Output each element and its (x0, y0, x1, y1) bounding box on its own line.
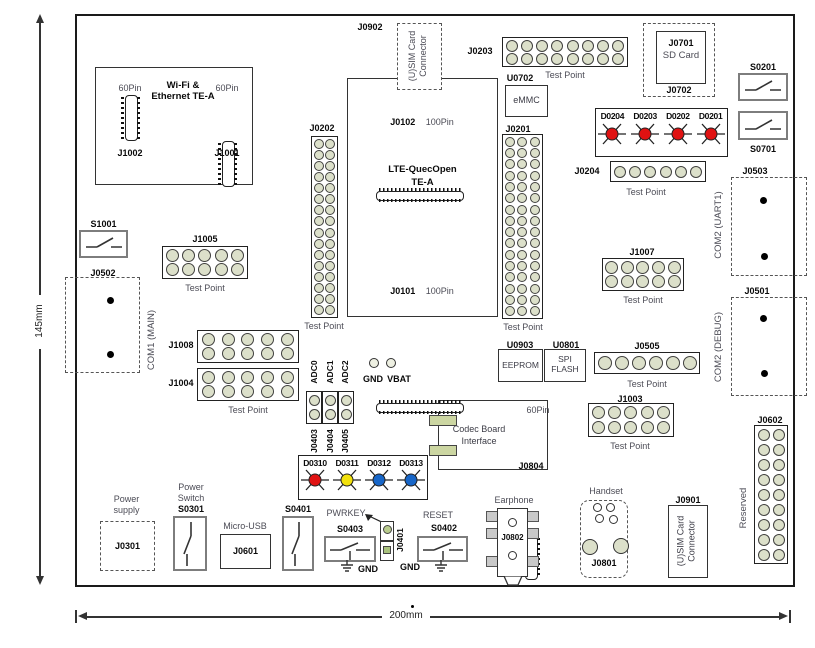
j0102-ref: J0102 (390, 117, 415, 127)
j0505-testpoint-grid (594, 352, 700, 374)
j1004-ref: J1004 (166, 378, 196, 388)
test-pad (530, 284, 540, 294)
test-pad (309, 409, 320, 420)
led-icon (597, 121, 627, 147)
switch-icon (179, 520, 201, 568)
j0101-label-row: J0101 100Pin (374, 281, 470, 299)
test-pad (530, 137, 540, 147)
test-pad (314, 283, 324, 293)
handset-pad (613, 538, 629, 554)
adc0-header-grid (306, 391, 322, 424)
j1005-ref: J1005 (162, 234, 248, 244)
test-pad (325, 272, 335, 282)
j0204-caption: Test Point (606, 187, 686, 197)
test-pad (314, 172, 324, 182)
s0301-switch (173, 516, 207, 571)
j0401-pin-square (383, 546, 391, 554)
gnd-pad (369, 358, 379, 368)
com1-main-area (65, 277, 140, 373)
test-pad (773, 429, 785, 441)
test-pad (530, 159, 540, 169)
pin-dot (760, 197, 767, 204)
test-pad (166, 249, 179, 262)
test-pad (202, 347, 215, 360)
test-pad (652, 261, 665, 274)
test-pad (612, 40, 624, 52)
test-pad (241, 371, 254, 384)
led-label: D0311 (335, 458, 358, 468)
led-bank-top: D0204 D0203 D0202 D0201 (595, 108, 728, 157)
j1002-connector-icon (121, 95, 140, 141)
com2-uart1-area (731, 177, 807, 276)
s0402-ref: S0402 (424, 523, 464, 533)
adc2-label: ADC2 (340, 357, 350, 387)
height-dim-label: 145mm (34, 298, 46, 344)
test-pad (530, 261, 540, 271)
j0202-ref: J0202 (300, 123, 344, 133)
test-pad (505, 205, 515, 215)
test-pad (758, 444, 770, 456)
test-pad (314, 139, 324, 149)
test-pad (517, 295, 527, 305)
handset-label: Handset (584, 486, 628, 496)
width-dim-label: 200mm (382, 610, 430, 621)
switch-icon (328, 538, 372, 560)
test-pad (314, 205, 324, 215)
module-title-line2: TE-A (357, 177, 488, 188)
pwrkey-gnd-label: GND (354, 564, 382, 574)
switch-icon (84, 234, 124, 254)
j0701-ref: J0701 (658, 38, 704, 48)
test-pad (644, 166, 656, 178)
test-pad (325, 139, 335, 149)
power-supply-label-line1: Power (104, 494, 149, 504)
test-pad (505, 272, 515, 282)
led-label: D0202 (666, 111, 690, 121)
j0405-ref: J0405 (340, 424, 350, 458)
led-d0312: D0312 (363, 458, 395, 499)
vbat-label: VBAT (384, 374, 414, 384)
test-pad (517, 137, 527, 147)
j1005-caption: Test Point (165, 283, 245, 293)
adc1-label: ADC1 (325, 357, 335, 387)
jack-tab (527, 528, 539, 539)
j0202-testpoint-grid (311, 136, 338, 318)
j1004-caption: Test Point (208, 405, 288, 415)
test-pad (314, 250, 324, 260)
power-switch-label-line1: Power (168, 482, 214, 492)
test-pad (773, 489, 785, 501)
led-d0203: D0203 (629, 111, 662, 156)
test-pad (636, 261, 649, 274)
j0201-caption: Test Point (491, 322, 555, 332)
led-icon (630, 121, 660, 147)
test-pad (517, 250, 527, 260)
arrow-down-icon (36, 576, 44, 585)
test-pad (517, 238, 527, 248)
sim-top-line1: (U)SIM Card (407, 31, 417, 82)
test-pad (325, 261, 335, 271)
test-pad (605, 261, 618, 274)
s0701-switch (738, 111, 788, 140)
test-pad (314, 272, 324, 282)
codec-tab (429, 445, 457, 456)
test-pad (641, 421, 654, 434)
test-pad (341, 409, 352, 420)
test-pad (567, 53, 579, 65)
width-dim-tick (75, 610, 77, 623)
test-pad (261, 333, 274, 346)
adc0-label: ADC0 (309, 357, 319, 387)
j0404-ref: J0404 (325, 424, 335, 458)
spi-flash-line1: SPI (544, 354, 586, 364)
test-pad (231, 249, 244, 262)
test-pad (758, 474, 770, 486)
j0101-pin-count: 100Pin (426, 286, 454, 296)
led-label: D0204 (601, 111, 625, 121)
test-pad (325, 172, 335, 182)
test-pad (325, 294, 335, 304)
test-pad (636, 275, 649, 288)
test-pad (758, 459, 770, 471)
wifi-title-line2: Ethernet TE-A (151, 91, 214, 102)
test-pad (517, 171, 527, 181)
j1007-testpoint-grid (602, 258, 684, 291)
j1007-caption: Test Point (603, 295, 683, 305)
j0501-ref: J0501 (737, 286, 777, 296)
test-pad (325, 409, 336, 420)
test-pad (341, 395, 352, 406)
test-pad (530, 148, 540, 158)
s0201-switch (738, 73, 788, 101)
test-pad (758, 429, 770, 441)
j0102-pin-count: 100Pin (426, 117, 454, 127)
j1005-testpoint-grid (162, 246, 248, 279)
led-label: D0312 (367, 458, 391, 468)
test-pad (530, 216, 540, 226)
sim-bottom-label: (U)SIM Card Connector (676, 508, 700, 575)
test-pad (530, 272, 540, 282)
test-pad (215, 263, 228, 276)
j0202-caption: Test Point (292, 321, 356, 331)
j0204-ref: J0204 (566, 166, 608, 176)
test-pad (608, 421, 621, 434)
j1008-testpoint-grid (197, 330, 299, 363)
jack-tab (527, 511, 539, 522)
board-diagram: Wi-Fi & Ethernet TE-A 60Pin J1002 60Pin … (0, 0, 815, 648)
j0505-ref: J0505 (627, 341, 667, 351)
test-pad (530, 171, 540, 181)
adc2-header-grid (338, 391, 354, 424)
test-pad (241, 385, 254, 398)
handset-hole (593, 503, 602, 512)
j1003-caption: Test Point (590, 441, 670, 451)
test-pad (215, 249, 228, 262)
reserved-label: Reserved (738, 478, 750, 538)
led-label: D0313 (399, 458, 423, 468)
test-pad (505, 227, 515, 237)
s0401-ref: S0401 (280, 504, 316, 514)
width-dim-line (430, 616, 779, 618)
spi-flash-line2: FLASH (544, 364, 586, 374)
j0503-ref: J0503 (735, 166, 775, 176)
j0204-testpoint-grid (610, 161, 706, 182)
test-pad (505, 148, 515, 158)
test-pad (309, 395, 320, 406)
test-pad (683, 356, 697, 370)
test-pad (325, 239, 335, 249)
pin-dot (107, 297, 114, 304)
test-pad (624, 421, 637, 434)
led-icon (396, 468, 426, 492)
test-pad (517, 205, 527, 215)
sd-card-label: SD Card (656, 50, 706, 61)
s0201-ref: S0201 (738, 62, 788, 72)
test-pad (632, 356, 646, 370)
led-icon (696, 121, 726, 147)
test-pad (222, 347, 235, 360)
s0402-switch (417, 536, 468, 562)
led-d0204: D0204 (596, 111, 629, 156)
test-pad (536, 53, 548, 65)
test-pad (505, 137, 515, 147)
test-pad (314, 150, 324, 160)
test-pad (598, 356, 612, 370)
led-icon (364, 468, 394, 492)
test-pad (551, 53, 563, 65)
test-pad (325, 205, 335, 215)
codec-label-line2: Interface (448, 436, 510, 446)
j0401-pin-round (383, 525, 392, 534)
test-pad (773, 504, 785, 516)
test-pad (517, 159, 527, 169)
sim-bottom-line1: (U)SIM Card (676, 516, 686, 567)
test-pad (773, 549, 785, 561)
test-pad (517, 272, 527, 282)
codec-label-line1: Codec Board (448, 424, 510, 434)
adc1-header-grid (322, 391, 338, 424)
j0101-connector-icon (376, 400, 464, 414)
j0403-ref: J0403 (309, 424, 319, 458)
handset-hole (606, 503, 615, 512)
stray-dot (411, 605, 414, 608)
test-pad (505, 306, 515, 316)
test-pad (325, 150, 335, 160)
jack-hole (508, 518, 517, 527)
earphone-label: Earphone (490, 495, 538, 505)
test-pad (325, 216, 335, 226)
s0301-ref: S0301 (168, 504, 214, 514)
s0403-ref: S0403 (330, 524, 370, 534)
test-pad (281, 333, 294, 346)
led-label: D0310 (303, 458, 327, 468)
sim-top-label: (U)SIM Card Connector (407, 25, 431, 87)
test-pad (517, 193, 527, 203)
j0801-ref: J0801 (589, 558, 619, 568)
test-pad (314, 261, 324, 271)
j0602-reserved-grid (754, 425, 788, 564)
test-pad (314, 194, 324, 204)
test-pad (530, 306, 540, 316)
j1003-testpoint-grid (588, 403, 674, 437)
j0505-caption: Test Point (607, 379, 687, 389)
test-pad (758, 519, 770, 531)
test-pad (281, 371, 294, 384)
power-switch-label-line2: Switch (168, 493, 214, 503)
pin-dot (760, 315, 767, 322)
power-supply-label-line2: supply (104, 505, 149, 515)
j1001-pin-count: 60Pin (207, 83, 247, 93)
led-d0202: D0202 (662, 111, 695, 156)
test-pad (660, 166, 672, 178)
test-pad (666, 356, 680, 370)
test-pad (773, 474, 785, 486)
s1001-switch (79, 230, 128, 258)
test-pad (314, 239, 324, 249)
test-pad (592, 406, 605, 419)
test-pad (530, 295, 540, 305)
test-pad (649, 356, 663, 370)
test-pad (505, 238, 515, 248)
test-pad (530, 182, 540, 192)
test-pad (597, 40, 609, 52)
test-pad (551, 40, 563, 52)
test-pad (222, 371, 235, 384)
j0601-ref: J0601 (220, 546, 271, 556)
j0802-ref: J0802 (498, 533, 527, 542)
switch-icon (287, 520, 309, 568)
led-label: D0201 (699, 111, 723, 121)
test-pad (241, 333, 254, 346)
test-pad (657, 421, 670, 434)
test-pad (592, 421, 605, 434)
test-pad (758, 489, 770, 501)
j1002-pin-count: 60Pin (110, 83, 150, 93)
led-icon (332, 468, 362, 492)
test-pad (530, 205, 540, 215)
test-pad (202, 371, 215, 384)
test-pad (614, 166, 626, 178)
test-pad (325, 250, 335, 260)
com2-uart1-label: COM2 (UART1) (713, 185, 725, 265)
j0301-ref: J0301 (100, 541, 155, 551)
handset-hole (609, 515, 618, 524)
wifi-title-line1: Wi-Fi & (167, 80, 200, 91)
test-pad (222, 333, 235, 346)
led-icon (300, 468, 330, 492)
pin-dot (761, 253, 768, 260)
test-pad (314, 216, 324, 226)
test-pad (281, 347, 294, 360)
handset-hole (595, 514, 604, 523)
led-icon (663, 121, 693, 147)
test-pad (314, 228, 324, 238)
led-d0201: D0201 (694, 111, 727, 156)
test-pad (517, 216, 527, 226)
reset-label: RESET (418, 510, 458, 520)
test-pad (314, 183, 324, 193)
arrow-right-icon (779, 612, 788, 620)
test-pad (325, 283, 335, 293)
j0902-ref: J0902 (350, 22, 390, 32)
com2-debug-label: COM2 (DEBUG) (713, 307, 725, 387)
test-pad (521, 53, 533, 65)
test-pad (517, 261, 527, 271)
test-pad (505, 295, 515, 305)
led-bank-mid: D0310 D0311 D0312 D0313 (298, 455, 428, 500)
j0804-pin-count: 60Pin (520, 405, 556, 415)
j0901-ref: J0901 (668, 495, 708, 505)
test-pad (198, 263, 211, 276)
s1001-ref: S1001 (79, 219, 128, 229)
test-pad (530, 193, 540, 203)
test-pad (505, 159, 515, 169)
test-pad (624, 406, 637, 419)
test-pad (675, 166, 687, 178)
test-pad (530, 250, 540, 260)
switch-icon (743, 77, 783, 97)
test-pad (325, 194, 335, 204)
test-pad (615, 356, 629, 370)
test-pad (281, 385, 294, 398)
test-pad (505, 216, 515, 226)
test-pad (517, 306, 527, 316)
micro-usb-label: Micro-USB (219, 521, 271, 531)
test-pad (182, 249, 195, 262)
test-pad (773, 534, 785, 546)
test-pad (597, 53, 609, 65)
test-pad (517, 284, 527, 294)
test-pad (582, 40, 594, 52)
test-pad (314, 161, 324, 171)
j1002-ref: J1002 (108, 148, 152, 158)
test-pad (506, 40, 518, 52)
test-pad (505, 250, 515, 260)
test-pad (505, 182, 515, 192)
s0401-switch (282, 516, 314, 571)
test-pad (582, 53, 594, 65)
test-pad (668, 261, 681, 274)
j0804-ref: J0804 (517, 461, 545, 471)
j1008-ref: J1008 (166, 340, 196, 350)
test-pad (261, 385, 274, 398)
pin-dot (761, 370, 768, 377)
test-pad (261, 371, 274, 384)
test-pad (506, 53, 518, 65)
gnd-label: GND (360, 374, 386, 384)
vbat-pad (386, 358, 396, 368)
height-dim-line (39, 16, 41, 295)
test-pad (652, 275, 665, 288)
test-pad (314, 294, 324, 304)
j0401-ref: J0401 (395, 525, 405, 555)
test-pad (657, 406, 670, 419)
test-pad (773, 519, 785, 531)
test-pad (505, 171, 515, 181)
width-dim-tick (789, 610, 791, 623)
test-pad (222, 385, 235, 398)
emmc-label: eMMC (505, 95, 548, 105)
test-pad (241, 347, 254, 360)
jack-stub (501, 576, 525, 586)
test-pad (325, 305, 335, 315)
j0203-testpoint-grid (502, 37, 628, 67)
led-d0313: D0313 (395, 458, 427, 499)
switch-icon (421, 538, 465, 560)
module-title-line1: LTE-QuecOpen (357, 164, 488, 175)
test-pad (641, 406, 654, 419)
test-pad (773, 444, 785, 456)
